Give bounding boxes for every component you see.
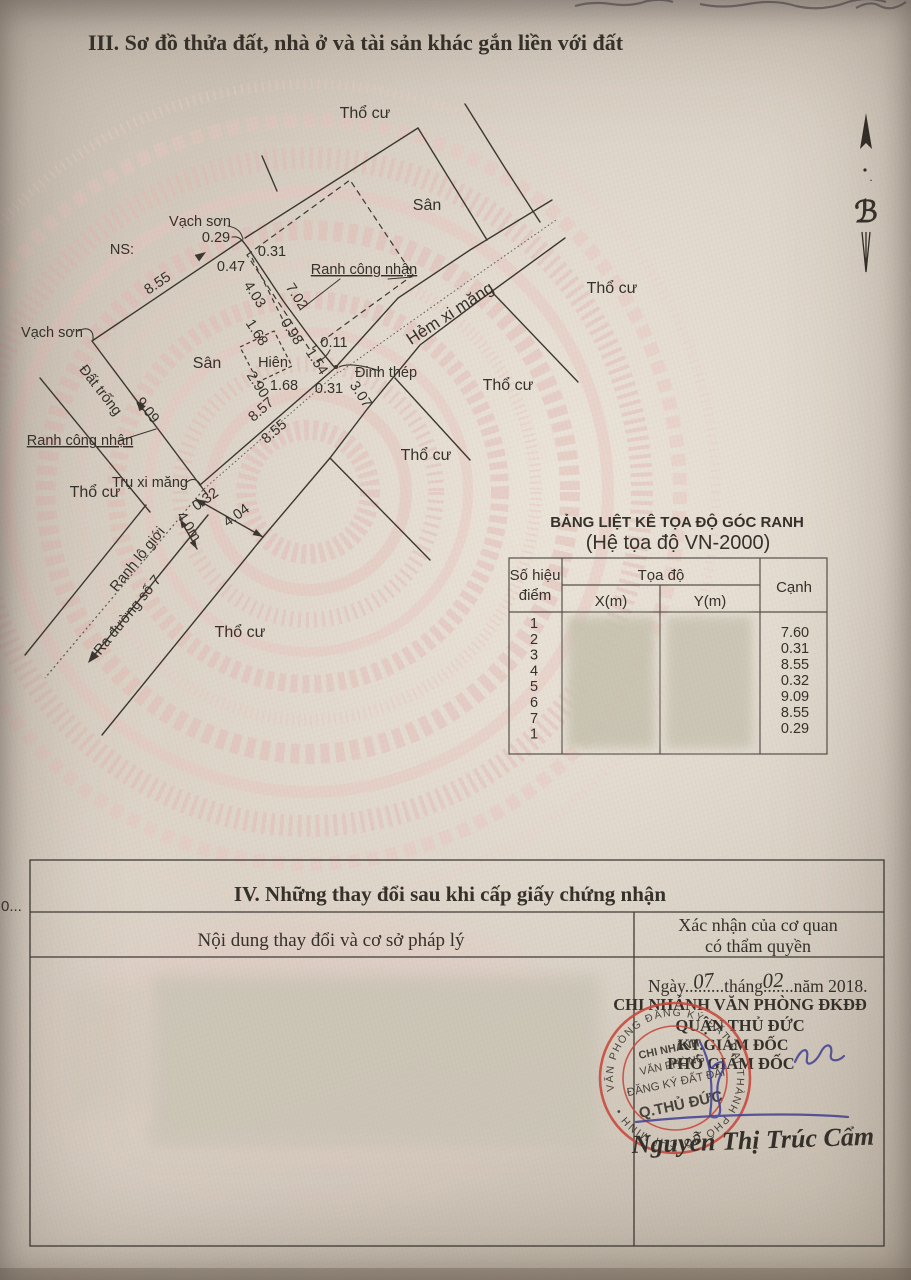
- diagram-label: Trụ xi măng: [112, 475, 188, 491]
- col-point-header2: điểm: [519, 587, 552, 604]
- diagram-label: Vạch sơn: [169, 214, 231, 230]
- diagram-label: Thổ cư: [215, 623, 266, 641]
- diagram-label: Sân: [193, 355, 221, 372]
- handwritten-day: 07: [692, 967, 717, 994]
- compass-letter: ℬ: [854, 196, 878, 229]
- point-number: 4: [530, 663, 538, 679]
- section3-title: III. Sơ đồ thửa đất, nhà ở và tài sản kh…: [88, 30, 624, 55]
- col-edge-header: Cạnh: [776, 579, 812, 596]
- point-number: 5: [530, 679, 538, 695]
- compass-glyph: .: [869, 170, 872, 184]
- redacted-y-values: [666, 616, 752, 748]
- diagram-label: 0.11: [320, 335, 347, 351]
- diagram-label: 0.31: [258, 244, 286, 260]
- coordinate-table-title: BẢNG LIỆT KÊ TỌA ĐỘ GÓC RANH: [550, 513, 804, 531]
- edge-length: 0.31: [781, 641, 809, 657]
- diagram-label: Sân: [413, 197, 441, 214]
- handwritten-month: 02: [762, 968, 785, 993]
- certificate-canvas: III. Sơ đồ thửa đất, nhà ở và tài sản kh…: [0, 0, 911, 1280]
- diagram-label: 0.29: [202, 230, 230, 246]
- edge-length: 0.32: [781, 673, 809, 689]
- diagram-label: 1.68: [270, 378, 298, 394]
- edge-length-column: 7.600.318.550.329.098.550.29: [781, 625, 809, 737]
- signer-name: Nguyễn Thị Trúc Cẩm: [630, 1122, 874, 1159]
- coordinate-table-subtitle: (Hệ tọa độ VN-2000): [586, 532, 771, 554]
- edge-length: 8.55: [781, 657, 809, 673]
- point-number-column: 12345671: [530, 616, 538, 743]
- north-compass: . ℬ: [854, 113, 878, 272]
- diagram-label: Thổ cư: [483, 376, 534, 394]
- edge-length: 0.29: [781, 721, 809, 737]
- diagram-label: Thổ cư: [401, 446, 452, 464]
- point-number: 7: [530, 711, 538, 727]
- diagram-label: Vạch sơn: [21, 325, 83, 341]
- point-number: 1: [530, 727, 538, 743]
- diagram-label: Thổ cư: [340, 104, 391, 122]
- point-number: 1: [530, 616, 538, 632]
- edge-length: 8.55: [781, 705, 809, 721]
- margin-note: 0...: [1, 898, 22, 915]
- diagram-label: Đất trống: [75, 362, 124, 419]
- photo-bottom-edge: [0, 1268, 911, 1280]
- certificate-page: III. Sơ đồ thửa đất, nhà ở và tài sản kh…: [0, 0, 911, 1280]
- diagram-label: 0.47: [217, 259, 245, 275]
- point-number: 6: [530, 695, 538, 711]
- diagram-label: 0.31: [315, 381, 343, 397]
- col-coord-header: Tọa độ: [638, 567, 685, 584]
- section4-title: IV. Những thay đổi sau khi cấp giấy chứn…: [234, 882, 666, 906]
- top-edge-handwriting-decoration: [575, 0, 906, 8]
- redacted-x-values: [567, 616, 655, 748]
- section4-left-header: Nội dung thay đổi và cơ sở pháp lý: [197, 930, 465, 951]
- redacted-change-content: [150, 975, 600, 1147]
- edge-length: 7.60: [781, 625, 809, 641]
- approval-date: Ngày.........tháng.......năm 2018.: [648, 976, 868, 996]
- col-point-header: Số hiệu: [510, 567, 561, 584]
- col-y-header: Y(m): [694, 593, 727, 610]
- diagram-label: Hiên: [258, 355, 288, 371]
- compass-arrowhead-icon: [860, 113, 872, 149]
- point-number: 2: [530, 632, 538, 648]
- edge-length: 9.09: [781, 689, 809, 705]
- diagram-label: Ranh công nhận: [27, 433, 133, 449]
- diagram-label: Ranh công nhận: [311, 262, 417, 278]
- diagram-label: Thổ cư: [587, 279, 638, 297]
- section4-right-header1: Xác nhận của cơ quan: [678, 915, 837, 935]
- col-x-header: X(m): [595, 593, 628, 610]
- diagram-label: Đinh thép: [355, 365, 417, 381]
- point-number: 3: [530, 648, 538, 664]
- section4-right-header2: có thẩm quyền: [705, 936, 811, 956]
- diagram-label: NS:: [110, 242, 134, 258]
